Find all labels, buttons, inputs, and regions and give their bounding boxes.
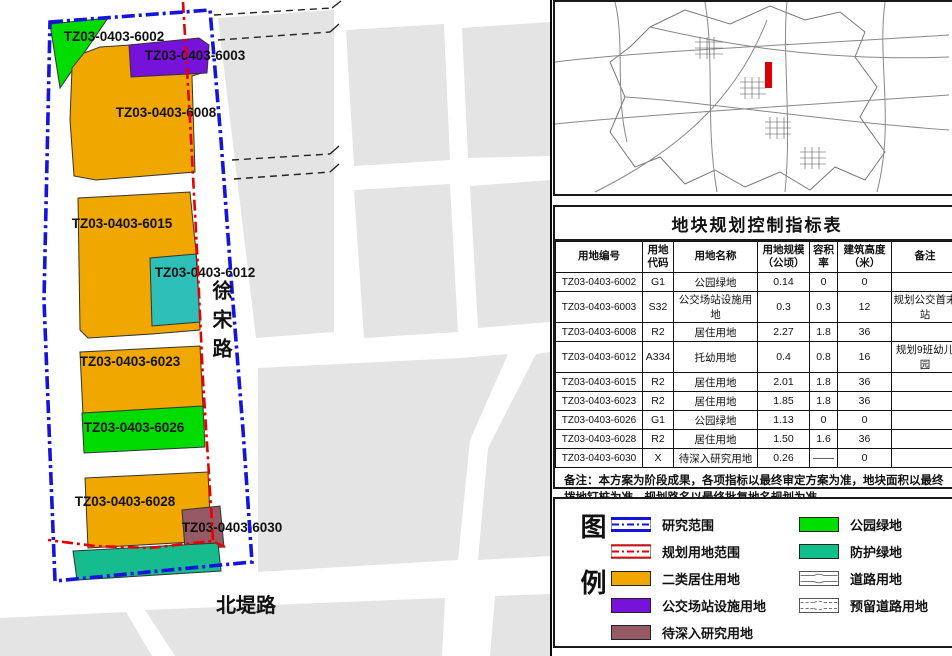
table-cell: 36 (838, 430, 892, 449)
table-cell: 0 (810, 273, 838, 292)
legend-item: 待深入研究用地 (611, 619, 799, 646)
table-cell: 1.85 (758, 392, 810, 411)
legend-swatch-fill (611, 625, 651, 640)
table-cell: 托幼用地 (674, 342, 758, 373)
legend-label: 研究范围 (662, 515, 714, 534)
table-cell: 公园绿地 (674, 273, 758, 292)
table-cell (892, 273, 952, 292)
legend-swatch (611, 625, 651, 640)
table-row: TZ03-0403-6015R2居住用地2.011.836 (556, 373, 952, 392)
table-cell: —— (810, 449, 838, 468)
table-cell: 0 (838, 449, 892, 468)
table-row: TZ03-0403-6008R2居住用地2.271.836 (556, 323, 952, 342)
table-header-cell: 容积 率 (810, 242, 838, 273)
table-cell: 居住用地 (674, 323, 758, 342)
road-label-beidi: 北堤路 (216, 589, 276, 618)
table-cell: 1.6 (810, 430, 838, 449)
legend-swatch (799, 571, 839, 586)
legend-swatch (611, 544, 651, 559)
table-cell: 居住用地 (674, 430, 758, 449)
table-cell (892, 430, 952, 449)
legend-item: 二类居住用地 (611, 565, 799, 592)
legend-label: 公交场站设施用地 (662, 596, 766, 615)
table-cell: 2.27 (758, 323, 810, 342)
table-row: TZ03-0403-6030X待深入研究用地0.26——0 (556, 449, 952, 468)
legend-swatch (611, 571, 651, 586)
legend-title: 图例 (555, 499, 611, 646)
table-cell: G1 (643, 273, 674, 292)
table-cell: G1 (643, 411, 674, 430)
table-cell: 1.8 (810, 392, 838, 411)
parcel-label: TZ03-0403-6030 (182, 520, 283, 535)
table-cell: 1.13 (758, 411, 810, 430)
legend-swatch-research (611, 517, 651, 532)
legend-swatch-fill (611, 571, 651, 586)
table-title: 地块规划控制指标表 (555, 207, 952, 241)
locator-map-box (553, 0, 952, 196)
table-cell: 0.8 (810, 342, 838, 373)
parcel-label: TZ03-0403-6003 (145, 48, 246, 63)
legend-item: 道路用地 (799, 565, 952, 592)
table-cell: R2 (643, 373, 674, 392)
legend-label: 预留道路用地 (850, 596, 928, 615)
table-cell: 36 (838, 392, 892, 411)
legend-swatch-road-reserved (799, 598, 839, 613)
legend-swatch-planning (611, 544, 651, 559)
table-cell: TZ03-0403-6008 (556, 323, 643, 342)
table-cell: 居住用地 (674, 392, 758, 411)
legend-box: 图例 研究范围 规划用地范围二类居住用地公交场站设施用地待深入研究用地 公园绿地… (553, 497, 952, 648)
table-header-cell: 用地 代码 (643, 242, 674, 273)
legend-item: 研究范围 (611, 511, 799, 538)
legend-item: 规划用地范围 (611, 538, 799, 565)
table-cell: TZ03-0403-6028 (556, 430, 643, 449)
table-row: TZ03-0403-6003S32公交场站设施用地0.30.312规划公交首末站 (556, 292, 952, 323)
parcel-label: TZ03-0403-6015 (72, 216, 173, 231)
table-cell: 规划公交首末站 (892, 292, 952, 323)
table-cell: S32 (643, 292, 674, 323)
table-cell: 36 (838, 323, 892, 342)
road-label-xusong: 徐宋路 (206, 280, 235, 367)
parcel-label: TZ03-0403-6002 (64, 29, 165, 44)
parcel-label: TZ03-0403-6026 (84, 420, 185, 435)
table-row: TZ03-0403-6002G1公园绿地0.1400 (556, 273, 952, 292)
legend-column-left: 研究范围 规划用地范围二类居住用地公交场站设施用地待深入研究用地 (611, 511, 799, 646)
table-header-cell: 建筑高度 （米） (838, 242, 892, 273)
parcel-label: TZ03-0403-6023 (80, 354, 181, 369)
legend-item: 防护绿地 (799, 538, 952, 565)
legend-item: 公园绿地 (799, 511, 952, 538)
table-cell: 16 (838, 342, 892, 373)
table-cell: 0.14 (758, 273, 810, 292)
parcel-label: TZ03-0403-6008 (116, 105, 217, 120)
table-row: TZ03-0403-6028R2居住用地1.501.636 (556, 430, 952, 449)
table-cell (892, 392, 952, 411)
table-cell: R2 (643, 323, 674, 342)
parcel-label: TZ03-0403-6012 (155, 265, 256, 280)
legend-swatch (799, 517, 839, 532)
locator-built-area (695, 37, 826, 169)
planning-map-panel: TZ03-0403-6002TZ03-0403-6008TZ03-0403-60… (0, 0, 552, 656)
legend-swatch-fill (799, 517, 839, 532)
table-cell: X (643, 449, 674, 468)
legend-column-right: 公园绿地防护绿地 道路用地 预留道路用地 (799, 511, 952, 646)
table-cell: 公园绿地 (674, 411, 758, 430)
legend-label: 道路用地 (850, 569, 902, 588)
table-cell: TZ03-0403-6030 (556, 449, 643, 468)
legend-label: 公园绿地 (850, 515, 902, 534)
table-cell (892, 449, 952, 468)
legend-swatch-fill (799, 544, 839, 559)
table-cell: 公交场站设施用地 (674, 292, 758, 323)
legend-swatch (799, 598, 839, 613)
legend-swatch (611, 598, 651, 613)
table-cell: R2 (643, 392, 674, 411)
table-cell: 36 (838, 373, 892, 392)
table-cell (892, 411, 952, 430)
map-canvas: TZ03-0403-6002TZ03-0403-6008TZ03-0403-60… (0, 0, 550, 656)
table-cell: TZ03-0403-6026 (556, 411, 643, 430)
table-cell (892, 373, 952, 392)
table-cell: TZ03-0403-6023 (556, 392, 643, 411)
table-cell: R2 (643, 430, 674, 449)
table-header-cell: 用地规模 （公顷） (758, 242, 810, 273)
legend-label: 二类居住用地 (662, 569, 740, 588)
table-cell: TZ03-0403-6015 (556, 373, 643, 392)
table-cell: TZ03-0403-6012 (556, 342, 643, 373)
table-header-row: 用地编号用地 代码用地名称用地规模 （公顷）容积 率建筑高度 （米）备注 (556, 242, 952, 273)
legend-item: 预留道路用地 (799, 592, 952, 619)
table-cell: 待深入研究用地 (674, 449, 758, 468)
table-cell: 居住用地 (674, 373, 758, 392)
table-box: 地块规划控制指标表 用地编号用地 代码用地名称用地规模 （公顷）容积 率建筑高度… (553, 205, 952, 489)
table-header-cell: 用地名称 (674, 242, 758, 273)
table-cell: 0.4 (758, 342, 810, 373)
legend-label: 待深入研究用地 (662, 623, 753, 642)
legend-item: 公交场站设施用地 (611, 592, 799, 619)
table-cell: A334 (643, 342, 674, 373)
indicators-table: 用地编号用地 代码用地名称用地规模 （公顷）容积 率建筑高度 （米）备注 TZ0… (555, 241, 952, 468)
legend-label: 规划用地范围 (662, 542, 740, 561)
table-header-cell: 备注 (892, 242, 952, 273)
legend-swatch (799, 544, 839, 559)
parcel-label: TZ03-0403-6028 (75, 494, 176, 509)
table-row: TZ03-0403-6012A334托幼用地0.40.816规划9班幼儿园 (556, 342, 952, 373)
legend-label: 防护绿地 (850, 542, 902, 561)
legend-swatch-fill (611, 598, 651, 613)
legend-swatch-road (799, 571, 839, 586)
table-cell: TZ03-0403-6003 (556, 292, 643, 323)
table-cell: 0 (810, 411, 838, 430)
table-cell: 12 (838, 292, 892, 323)
right-panel: 地块规划控制指标表 用地编号用地 代码用地名称用地规模 （公顷）容积 率建筑高度… (552, 0, 952, 656)
table-cell: 2.01 (758, 373, 810, 392)
table-cell: 0 (838, 411, 892, 430)
locator-marker (765, 62, 772, 88)
table-cell: 1.8 (810, 323, 838, 342)
table-row: TZ03-0403-6023R2居住用地1.851.836 (556, 392, 952, 411)
table-cell: 1.50 (758, 430, 810, 449)
table-cell: 0.3 (758, 292, 810, 323)
table-cell: 0.3 (810, 292, 838, 323)
table-cell: TZ03-0403-6002 (556, 273, 643, 292)
table-cell: 1.8 (810, 373, 838, 392)
protective-green-strip (73, 543, 221, 580)
table-cell: 规划9班幼儿园 (892, 342, 952, 373)
table-cell: 0.26 (758, 449, 810, 468)
table-header-cell: 用地编号 (556, 242, 643, 273)
table-cell (892, 323, 952, 342)
locator-map (555, 2, 949, 194)
table-row: TZ03-0403-6026G1公园绿地1.1300 (556, 411, 952, 430)
legend-swatch (611, 517, 651, 532)
table-cell: 0 (838, 273, 892, 292)
